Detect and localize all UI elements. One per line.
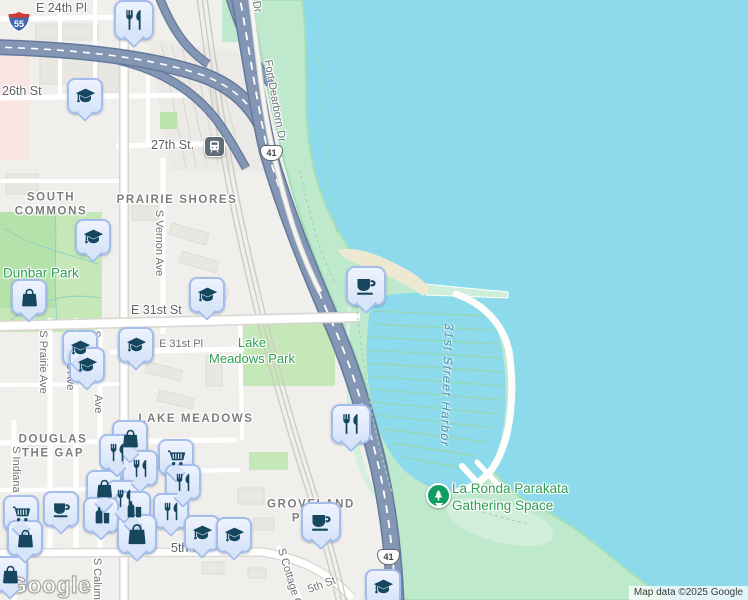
map-attribution: Map data ©2025 Google — [629, 586, 748, 600]
school-icon — [75, 86, 96, 107]
street-label-fort-dearborn-dr: Fort Dearborn Dr — [260, 59, 288, 143]
street-label-26th-st: 26th St — [2, 84, 42, 100]
restaurant-pin[interactable] — [114, 0, 154, 40]
street-label-s-vernon-ave: S Vernon Ave — [151, 210, 165, 276]
school-pin[interactable] — [365, 569, 401, 600]
shopping-bag-icon — [19, 287, 40, 308]
cafe-pin[interactable] — [301, 502, 341, 542]
school-pin[interactable] — [75, 219, 111, 255]
train-icon — [207, 139, 222, 154]
svg-text:55: 55 — [14, 19, 24, 29]
park-tree-icon — [432, 489, 445, 502]
street-label-e-31st-st: E 31st St — [131, 303, 182, 319]
water-label-31st-street-harbor: 31st Street Harbor — [436, 323, 456, 447]
shopping-cart-icon — [11, 503, 32, 524]
school-icon — [77, 355, 98, 376]
shopping-bag-icon — [125, 522, 149, 546]
restaurant-icon — [173, 472, 194, 493]
google-logo-watermark[interactable]: Google — [9, 572, 91, 599]
school-pin[interactable] — [67, 78, 103, 114]
street-label-e-24th-pl: E 24th Pl — [36, 1, 87, 17]
restaurant-icon — [107, 442, 128, 463]
map-viewport[interactable]: E 24th Pl26th StE 31st StE 31st Pl5th St… — [0, 0, 748, 600]
street-label-e-31st-pl: E 31st Pl — [159, 338, 203, 352]
neighborhood-label-lake-meadows: LAKE MEADOWS — [138, 412, 253, 426]
neighborhood-label-douglas-the-gap: DOUGLASTHE GAP — [19, 433, 88, 462]
map-overlay: E 24th Pl26th StE 31st StE 31st Pl5th St… — [0, 0, 748, 600]
shopping-bag-icon — [0, 564, 21, 585]
restaurant-icon — [161, 501, 182, 522]
restaurant-icon — [122, 8, 146, 32]
restaurant-icon — [339, 412, 363, 436]
park-poi-icon[interactable] — [426, 483, 451, 508]
convenience-store-icon — [123, 499, 144, 520]
school-icon — [373, 577, 394, 598]
shopping-bag-icon — [94, 478, 115, 499]
route-shield-i55: 55 — [7, 11, 31, 32]
school-pin[interactable] — [216, 517, 252, 553]
restaurant-pin[interactable] — [331, 404, 371, 444]
cafe-pin[interactable] — [346, 266, 386, 306]
shopping-bag-pin[interactable] — [11, 279, 47, 315]
cafe-icon — [51, 499, 72, 520]
shopping-bag-icon — [15, 528, 36, 549]
street-label-s-cottage-grove: S Cottage Grove — [273, 547, 310, 600]
school-icon — [192, 523, 213, 544]
cafe-pin[interactable] — [43, 491, 79, 527]
school-pin[interactable] — [118, 327, 154, 363]
street-label-s-prairie-ave: S Prairie Ave — [35, 330, 49, 393]
shopping-cart-icon — [166, 447, 187, 468]
transit-station-icon[interactable] — [204, 136, 225, 157]
cafe-icon — [309, 510, 333, 534]
neighborhood-label-south-commons: SOUTHCOMMONS — [15, 191, 88, 220]
street-label-27th-st: 27th St. — [151, 138, 194, 154]
street-label-fragment-ave: Ave — [90, 395, 104, 414]
street-label-dr-fragment: Dr — [248, 0, 264, 14]
convenience-store-icon — [91, 505, 112, 526]
park-label-la-ronda-parakata: La Ronda ParakataGathering Space — [452, 481, 568, 515]
street-label-35th-st-diagonal: 5th St — [306, 575, 338, 598]
school-icon — [224, 525, 245, 546]
neighborhood-label-prairie-shores: PRAIRIE SHORES — [117, 193, 238, 207]
school-icon — [83, 227, 104, 248]
cafe-icon — [354, 274, 378, 298]
park-label-lake-meadows-park: LakeMeadows Park — [209, 335, 295, 368]
school-icon — [126, 335, 147, 356]
restaurant-icon — [130, 458, 151, 479]
school-pin[interactable] — [184, 515, 220, 551]
school-pin[interactable] — [189, 277, 225, 313]
school-icon — [197, 285, 218, 306]
